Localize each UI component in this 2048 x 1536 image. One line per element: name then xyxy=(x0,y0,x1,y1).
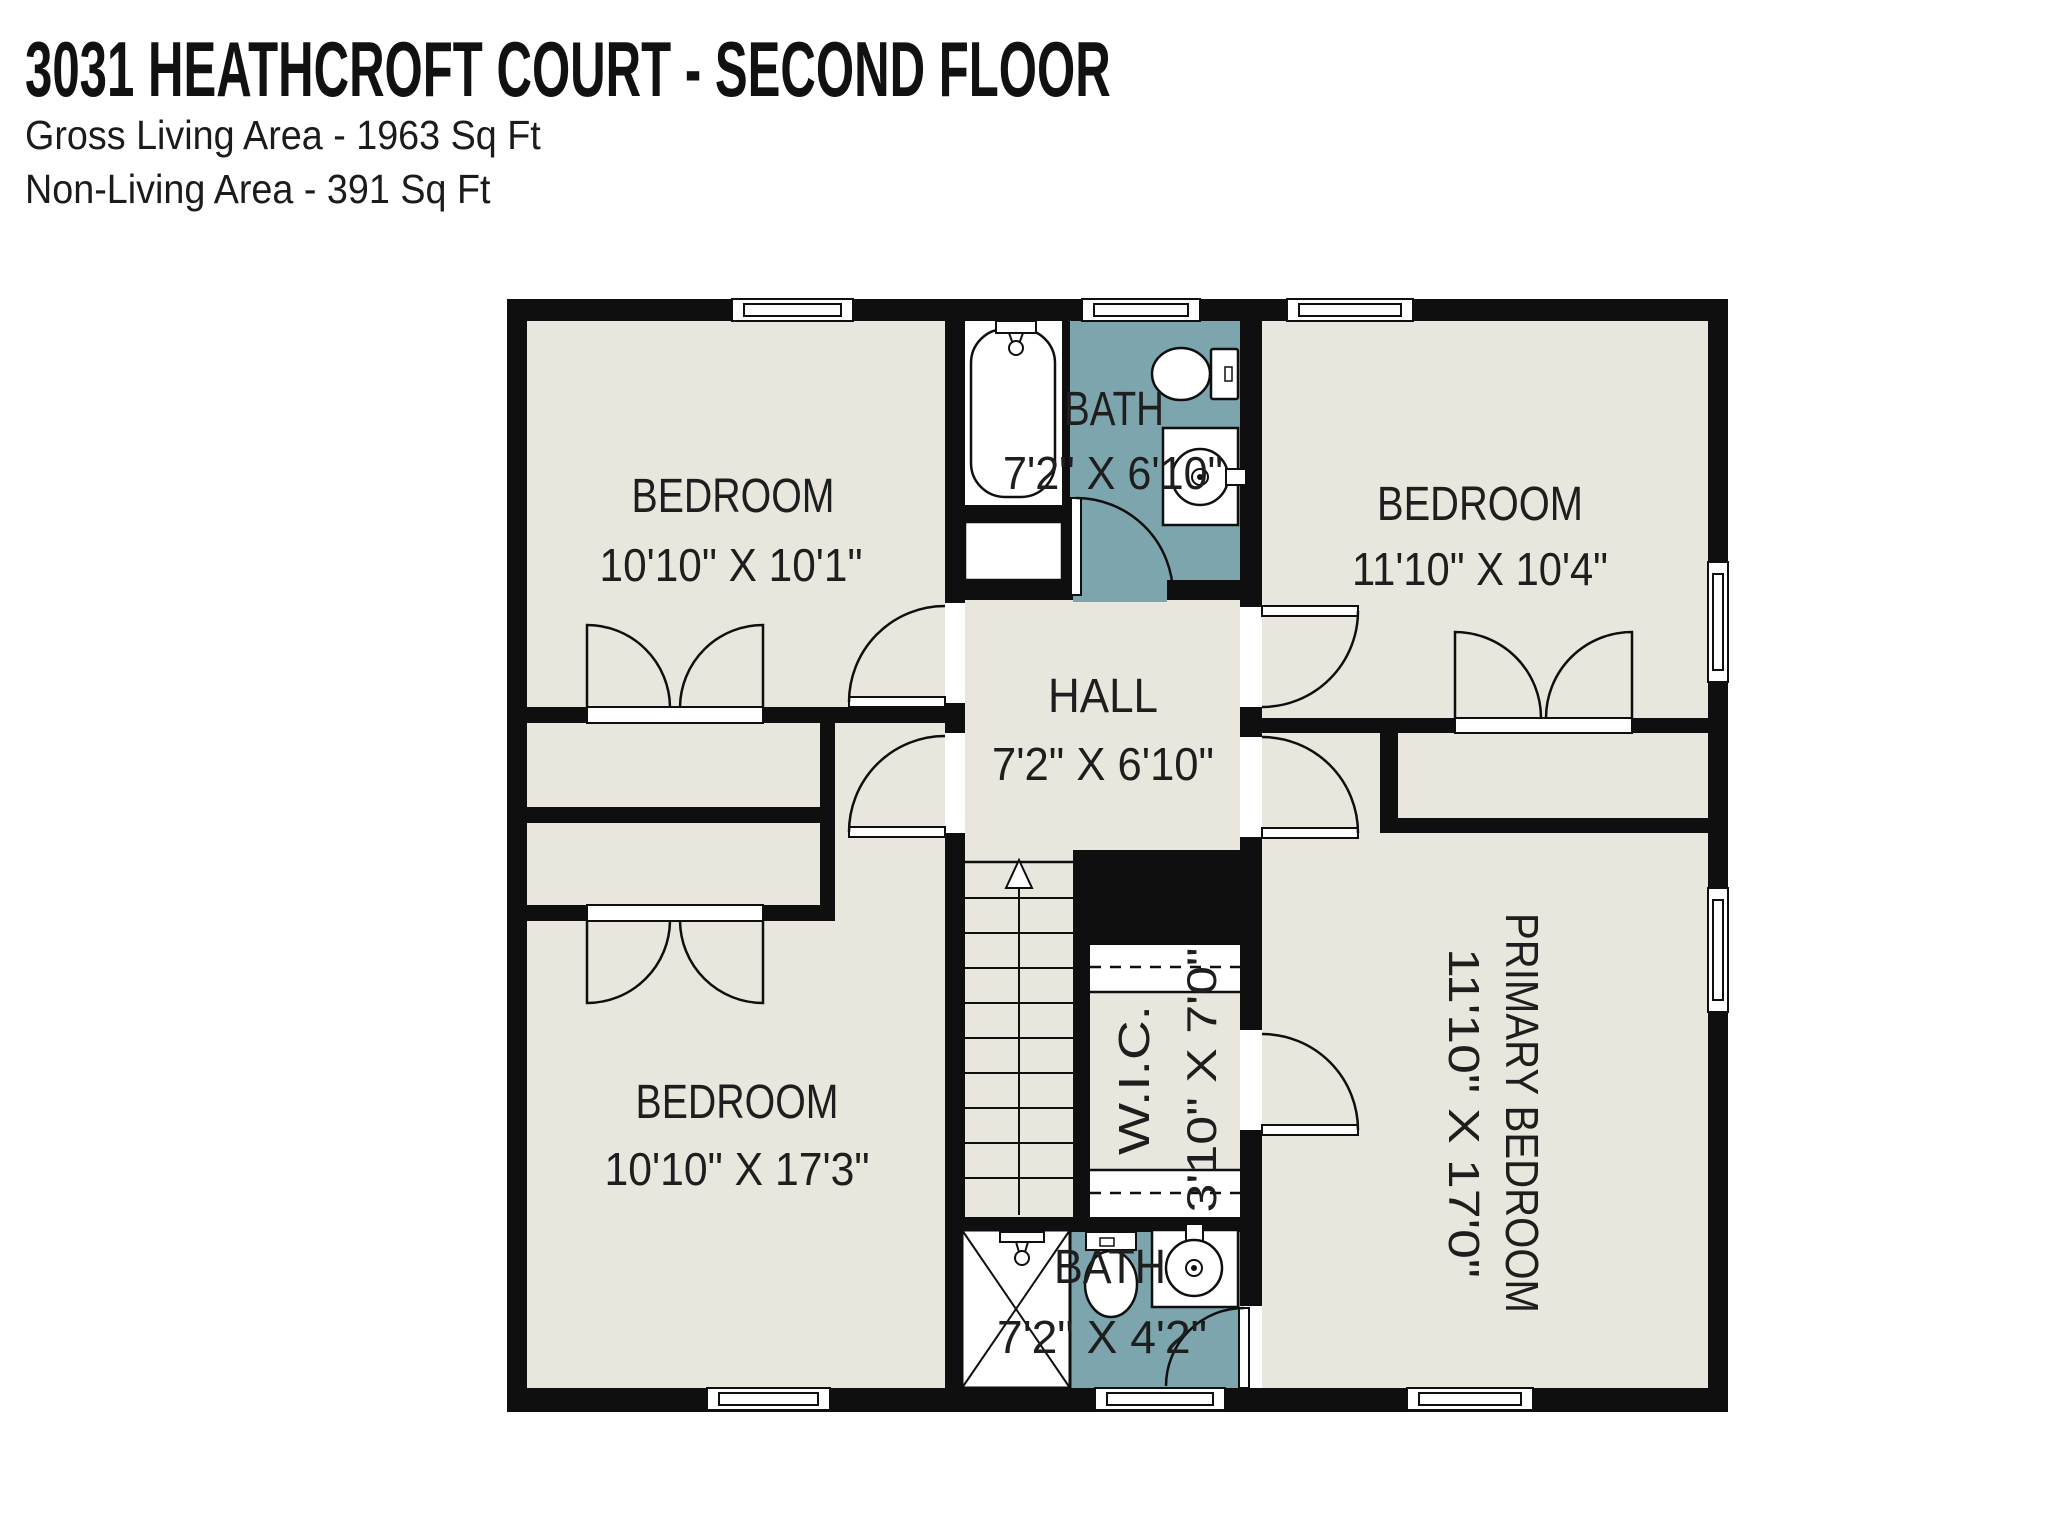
window xyxy=(732,299,853,321)
bath-bottom-dims: 7'2" X 4'2" xyxy=(997,1311,1207,1363)
bath-top-dims: 7'2" X 6'10" xyxy=(1003,447,1223,499)
window xyxy=(1287,299,1413,321)
gross-living-area: Gross Living Area - 1963 Sq Ft xyxy=(25,108,1610,162)
bedroom-bottom-left-label: BEDROOM xyxy=(636,1076,839,1129)
non-living-area: Non-Living Area - 391 Sq Ft xyxy=(25,162,1610,216)
bedroom-top-right-label: BEDROOM xyxy=(1377,478,1583,531)
hall-label: HALL xyxy=(1048,670,1158,723)
toilet-icon xyxy=(1152,348,1238,400)
floor-plan: BEDROOM 10'10" X 10'1" BATH 7'2" X 6'10"… xyxy=(0,0,2048,1536)
bedroom-top-right-dims: 11'10" X 10'4" xyxy=(1352,543,1608,595)
primary-bedroom-dims: 11'10" X 17'0" xyxy=(1439,948,1488,1278)
linen-closet xyxy=(965,522,1062,580)
window xyxy=(1082,299,1200,321)
plan-header: 3031 HEATHCROFT COURT - SECOND FLOOR Gro… xyxy=(25,30,1748,216)
floor-plan-page: 3031 HEATHCROFT COURT - SECOND FLOOR Gro… xyxy=(0,0,2048,1536)
plan-title: 3031 HEATHCROFT COURT - SECOND FLOOR xyxy=(25,30,1111,108)
primary-bedroom-label: PRIMARY BEDROOM xyxy=(1496,913,1548,1313)
bath-top-label: BATH xyxy=(1064,383,1164,436)
bedroom-top-left-label: BEDROOM xyxy=(632,470,835,523)
bath-bottom-label: BATH xyxy=(1054,1241,1166,1294)
window xyxy=(1708,562,1728,682)
window xyxy=(1095,1388,1225,1410)
wic-label: W.I.C. xyxy=(1110,1005,1159,1155)
bedroom-bottom-left-dims: 10'10" X 17'3" xyxy=(605,1143,870,1195)
window xyxy=(707,1388,830,1410)
window xyxy=(1708,888,1728,1012)
hall-dims: 7'2" X 6'10" xyxy=(992,738,1214,790)
bedroom-top-left-dims: 10'10" X 10'1" xyxy=(600,539,863,591)
wic-dims: 3'10" X 7'0" xyxy=(1178,948,1225,1213)
window xyxy=(1407,1388,1533,1410)
